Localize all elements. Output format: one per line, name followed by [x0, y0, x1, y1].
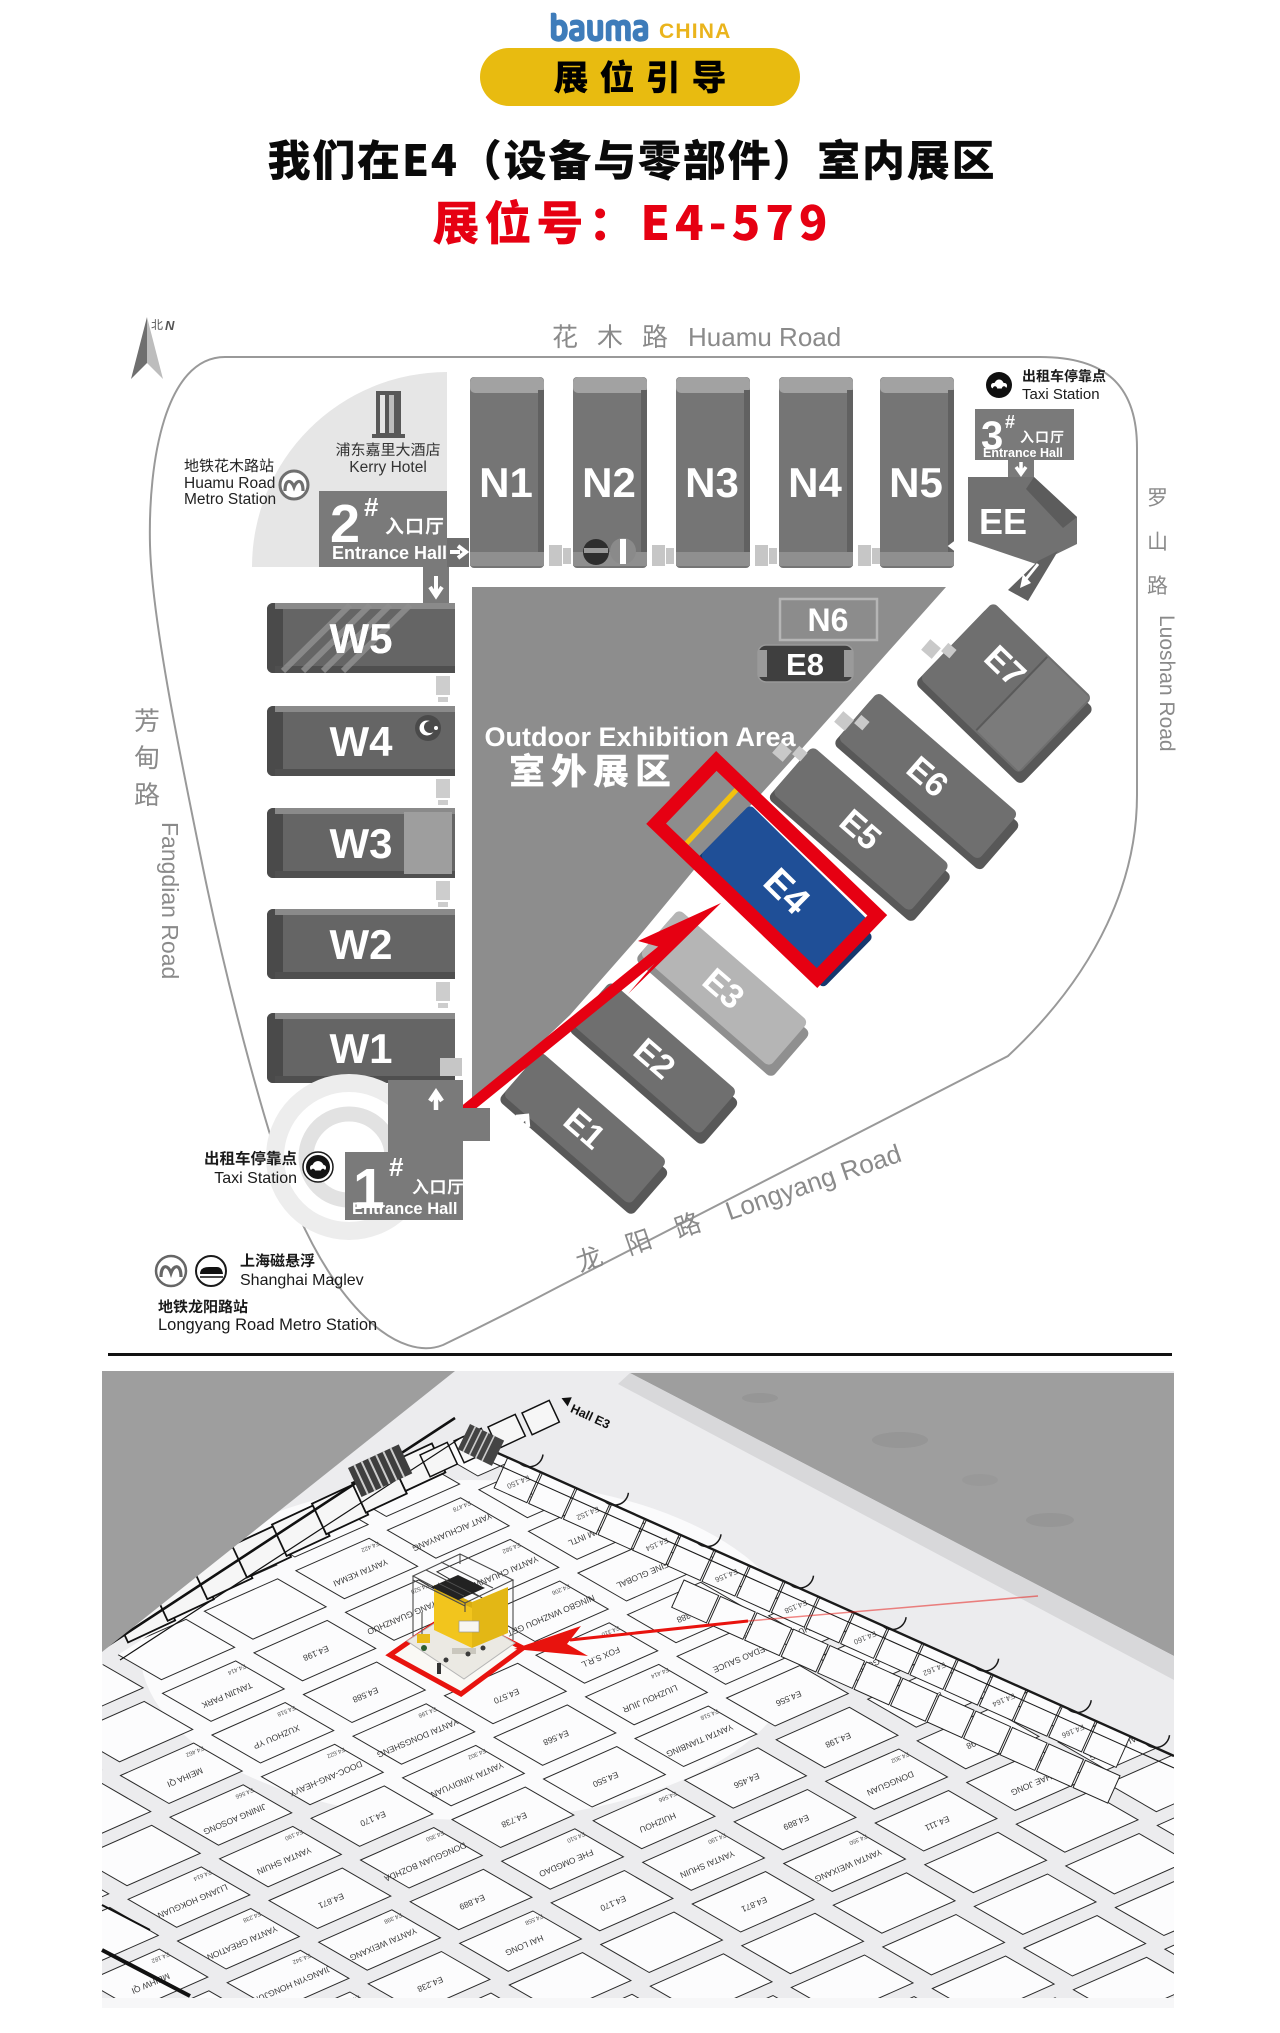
- svg-text:Outdoor Exhibition Area: Outdoor Exhibition Area: [484, 722, 796, 752]
- svg-text:W3: W3: [330, 820, 393, 867]
- svg-text:Entrance Hall: Entrance Hall: [352, 1200, 457, 1218]
- svg-text:N2: N2: [582, 459, 636, 506]
- svg-text:N6: N6: [808, 602, 849, 638]
- svg-text:CHINA: CHINA: [659, 20, 732, 43]
- svg-text:N3: N3: [685, 459, 739, 506]
- svg-text:W4: W4: [330, 718, 394, 765]
- svg-text:W2: W2: [330, 921, 393, 968]
- svg-text:#: #: [1005, 412, 1015, 432]
- svg-text:W1: W1: [330, 1025, 393, 1072]
- svg-text:N4: N4: [788, 459, 842, 506]
- svg-text:Longyang Road Metro Station: Longyang Road Metro Station: [158, 1316, 377, 1334]
- svg-text:Luoshan Road: Luoshan Road: [1155, 615, 1178, 752]
- svg-text:E8: E8: [786, 647, 824, 682]
- svg-text:Huamu Road: Huamu Road: [184, 475, 275, 492]
- svg-text:Taxi Station: Taxi Station: [214, 1170, 297, 1187]
- svg-text:N5: N5: [889, 459, 943, 506]
- svg-text:Metro Station: Metro Station: [184, 491, 276, 508]
- svg-text:Entrance Hall: Entrance Hall: [332, 543, 447, 563]
- svg-text:N1: N1: [479, 459, 533, 506]
- svg-text:N: N: [165, 318, 175, 333]
- svg-text:#: #: [389, 1152, 404, 1182]
- svg-text:EE: EE: [979, 501, 1027, 542]
- svg-text:W5: W5: [330, 615, 393, 662]
- svg-text:Entrance Hall: Entrance Hall: [983, 446, 1063, 460]
- svg-text:#: #: [364, 492, 379, 522]
- svg-text:Kerry Hotel: Kerry Hotel: [349, 459, 427, 476]
- svg-text:Fangdian Road: Fangdian Road: [157, 822, 183, 979]
- svg-text:Taxi Station: Taxi Station: [1022, 386, 1100, 403]
- svg-text:Shanghai Maglev: Shanghai Maglev: [240, 1272, 364, 1289]
- svg-text:Huamu Road: Huamu Road: [688, 322, 841, 352]
